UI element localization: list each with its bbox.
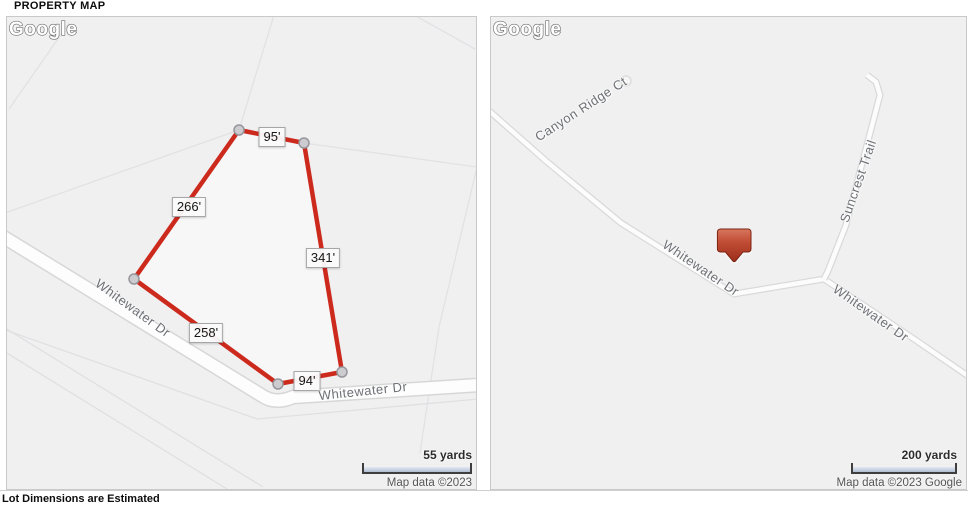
lot-dimension-label: 95' bbox=[259, 127, 286, 147]
google-logo-text: Google bbox=[493, 19, 561, 40]
scale-distance-label: 55 yards bbox=[362, 448, 472, 462]
map-scale: 55 yards bbox=[362, 448, 472, 474]
google-logo[interactable]: Google bbox=[7, 17, 77, 41]
map-scale: 200 yards bbox=[851, 448, 957, 474]
location-map-panel[interactable]: Canyon Ridge Ct Suncrest Trail Whitewate… bbox=[490, 16, 967, 490]
location-map-canvas bbox=[491, 17, 966, 489]
lot-dimension-label: 266' bbox=[172, 197, 206, 217]
lot-map-panel[interactable]: 95' 266' 341' 258' 94' Whitewater Dr Whi… bbox=[6, 16, 477, 490]
bottom-divider bbox=[0, 490, 968, 491]
lot-dimensions-disclaimer: Lot Dimensions are Estimated bbox=[2, 493, 160, 505]
scale-bar bbox=[851, 463, 957, 474]
lot-dimension-label: 341' bbox=[306, 248, 340, 268]
lot-map-canvas bbox=[7, 17, 476, 489]
property-marker-icon bbox=[717, 229, 751, 262]
page-title: PROPERTY MAP bbox=[14, 0, 105, 12]
scale-bar-fill bbox=[853, 467, 955, 472]
google-logo-text: Google bbox=[9, 19, 77, 40]
scale-bar bbox=[362, 463, 472, 474]
scale-distance-label: 200 yards bbox=[851, 448, 957, 462]
map-attribution: Map data ©2023 bbox=[387, 477, 472, 489]
scale-bar-fill bbox=[364, 467, 470, 472]
google-logo[interactable]: Google bbox=[491, 17, 561, 41]
lot-dimension-label: 94' bbox=[294, 371, 321, 391]
map-attribution: Map data ©2023 Google bbox=[837, 477, 962, 489]
lot-dimension-label: 258' bbox=[189, 323, 223, 343]
property-map-page: { "page": { "title": "PROPERTY MAP", "di… bbox=[0, 0, 968, 506]
